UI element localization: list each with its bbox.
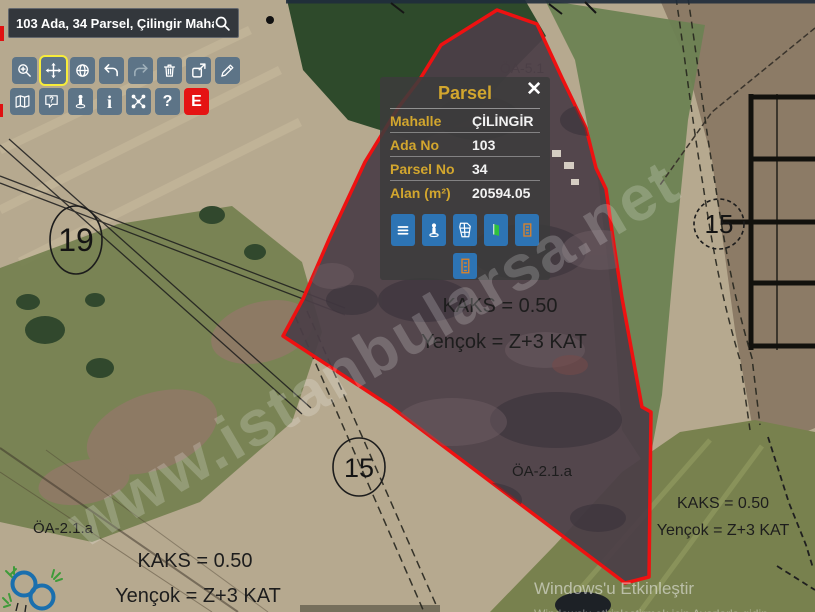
zoom-in-button[interactable] — [12, 57, 37, 84]
building-icon — [518, 218, 536, 242]
zone-label-oa-left: ÖA-2.1.a — [33, 519, 94, 537]
network-icon — [130, 93, 147, 110]
field-value: ÇİLİNGİR — [472, 113, 533, 129]
building-report-2-button[interactable] — [453, 253, 477, 279]
info-icon: i — [107, 93, 112, 111]
parcel-popup: Parsel ✕ Mahalle ÇİLİNGİR Ada No 103 Par… — [380, 77, 550, 280]
zone-label-yencok-left: Yençok = Z+3 KAT — [115, 585, 281, 607]
popup-actions-row2 — [390, 253, 540, 279]
export-icon — [190, 62, 207, 79]
redo-icon — [132, 62, 149, 79]
undo-icon — [103, 62, 120, 79]
zone-label-kaks-center: KAKS = 0.50 — [442, 295, 557, 317]
zone-label-yencok-center: Yençok = Z+3 KAT — [421, 331, 587, 353]
measure-network-button[interactable] — [126, 88, 151, 115]
field-value: 34 — [472, 161, 488, 177]
redo-button[interactable] — [128, 57, 153, 84]
pan-move-icon — [45, 62, 62, 79]
search-bar — [8, 8, 239, 38]
popup-actions — [390, 214, 540, 246]
field-value: 20594.05 — [472, 185, 530, 201]
globe-icon — [74, 62, 91, 79]
windows-activate-subtext: Windows'u etkinleştirmek için Ayarlar'a … — [534, 607, 771, 612]
block-number-15-east: 15 — [705, 209, 734, 239]
popup-title: Parsel — [390, 80, 540, 109]
e-letter-icon: E — [191, 94, 202, 110]
search-icon[interactable] — [214, 15, 231, 32]
search-input[interactable] — [16, 16, 214, 31]
help-bubble-icon: ? — [43, 93, 60, 110]
zone-label-oa-right: ÖA-2.1.a — [512, 462, 573, 480]
block-number-19: 19 — [58, 222, 94, 258]
popup-row-parsel: Parsel No 34 — [390, 157, 540, 181]
person-marker-icon — [425, 218, 443, 242]
trash-icon — [161, 62, 178, 79]
field-label: Parsel No — [390, 161, 472, 177]
field-label: Ada No — [390, 137, 472, 153]
block-number-15-south: 15 — [344, 453, 374, 483]
toolbar-row-1 — [12, 57, 240, 84]
zone-label-kaks-right: KAKS = 0.50 — [677, 495, 769, 512]
windows-activate-text: Windows'u Etkinleştir — [534, 579, 694, 599]
pencil-icon — [219, 62, 236, 79]
popup-row-alan: Alan (m²) 20594.05 — [390, 181, 540, 204]
folded-map-icon — [14, 93, 31, 110]
draw-button[interactable] — [215, 57, 240, 84]
question-button[interactable]: ? — [155, 88, 180, 115]
popup-row-mahalle: Mahalle ÇİLİNGİR — [390, 109, 540, 133]
street-view-icon — [72, 93, 89, 110]
street-view-button[interactable] — [68, 88, 93, 115]
close-button[interactable]: ✕ — [526, 79, 542, 102]
export-button[interactable] — [186, 57, 211, 84]
info-button[interactable]: i — [97, 88, 122, 115]
popup-row-ada: Ada No 103 — [390, 133, 540, 157]
municipality-logo — [2, 565, 68, 612]
map-3d-icon — [456, 218, 474, 242]
field-value: 103 — [472, 137, 495, 153]
parcel-map-app: 19 15 15 ÖA-5.1 — [0, 0, 815, 612]
building-icon — [456, 254, 474, 278]
street-view-person-button[interactable] — [422, 214, 446, 246]
zone-label-yencok-right: Yençok = Z+3 KAT — [657, 522, 790, 539]
field-label: Alan (m²) — [390, 185, 472, 201]
green-door-icon — [487, 218, 505, 242]
building-report-button[interactable] — [515, 214, 539, 246]
zone-label-kaks-left: KAKS = 0.50 — [137, 550, 252, 572]
help-bubble-button[interactable]: ? — [39, 88, 64, 115]
emlak-button[interactable]: E — [184, 88, 209, 115]
logo-stems — [16, 603, 26, 612]
zoom-in-icon — [16, 62, 33, 79]
world-button[interactable] — [70, 57, 95, 84]
layers-map-button[interactable] — [10, 88, 35, 115]
map-3d-button[interactable] — [453, 214, 477, 246]
field-label: Mahalle — [390, 113, 472, 129]
details-list-button[interactable] — [391, 214, 415, 246]
toolbar-row-2: ? i ? E — [10, 88, 209, 115]
undo-button[interactable] — [99, 57, 124, 84]
list-icon — [394, 218, 412, 242]
pan-button[interactable] — [41, 57, 66, 84]
question-icon: ? — [163, 94, 173, 110]
door-exit-button[interactable] — [484, 214, 508, 246]
delete-button[interactable] — [157, 57, 182, 84]
svg-text:?: ? — [49, 96, 54, 105]
